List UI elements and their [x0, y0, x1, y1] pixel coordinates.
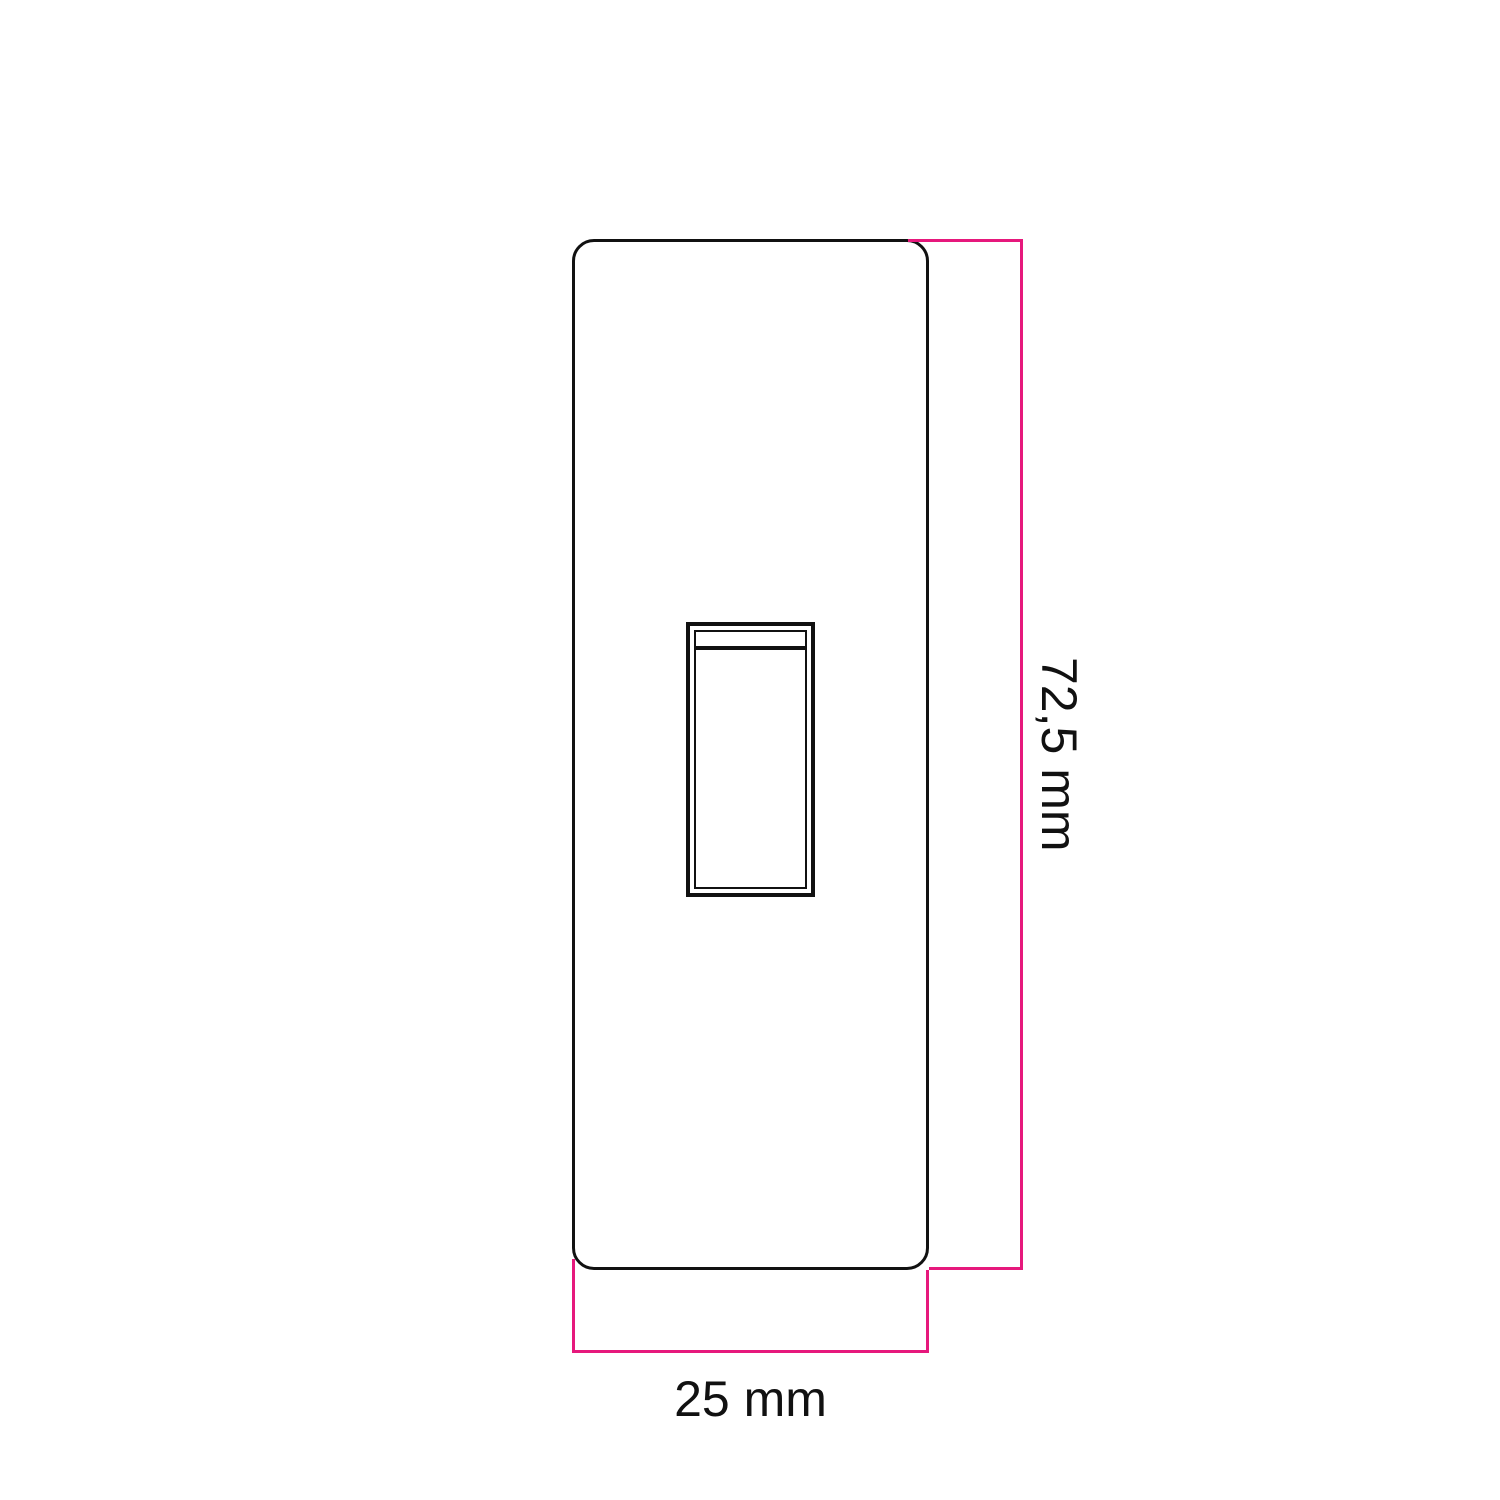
width-extension-right [926, 1270, 929, 1353]
rocker-inner-frame [694, 630, 807, 889]
drawing-canvas: 72,5 mm 25 mm [0, 0, 1500, 1500]
width-dimension-label: 25 mm [572, 1374, 929, 1424]
height-dimension-label: 72,5 mm [1030, 239, 1084, 1270]
height-extension-bottom [929, 1267, 1023, 1270]
width-dimension-line [572, 1350, 929, 1353]
width-extension-left [572, 1259, 575, 1353]
rocker-top-edge-line [695, 646, 806, 650]
height-dimension-line [1020, 239, 1023, 1270]
height-extension-top [908, 239, 1023, 242]
